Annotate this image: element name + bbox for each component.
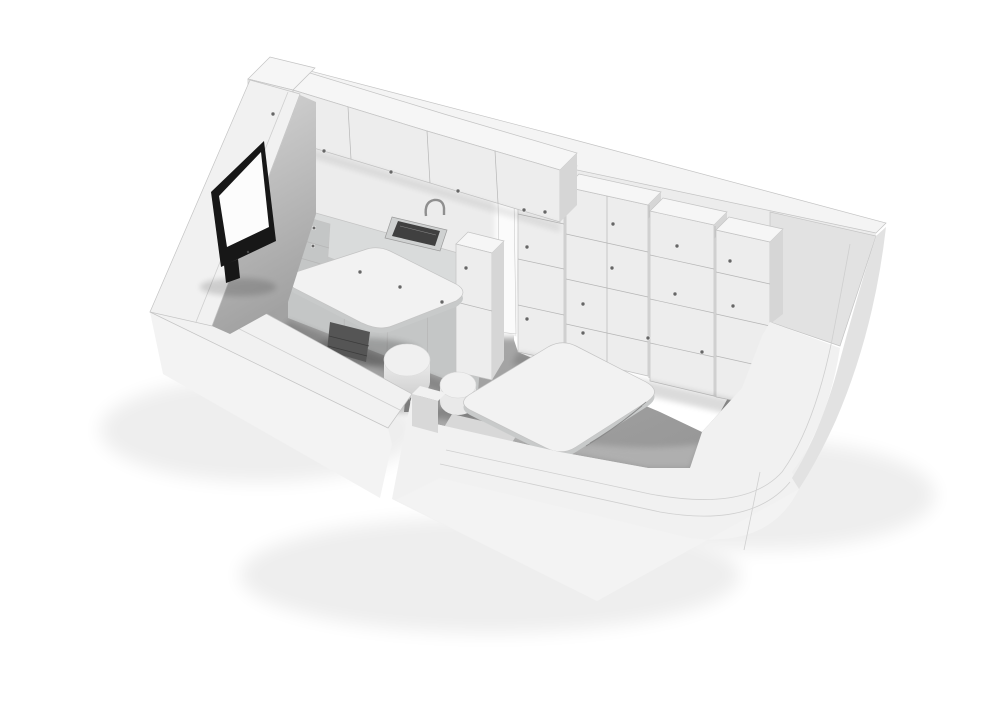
render-canvas [0, 0, 1000, 707]
room-model [0, 0, 1000, 707]
storage-column-c [650, 211, 714, 396]
tall-cabinet [456, 232, 504, 380]
tv-logo-dot [247, 251, 249, 253]
